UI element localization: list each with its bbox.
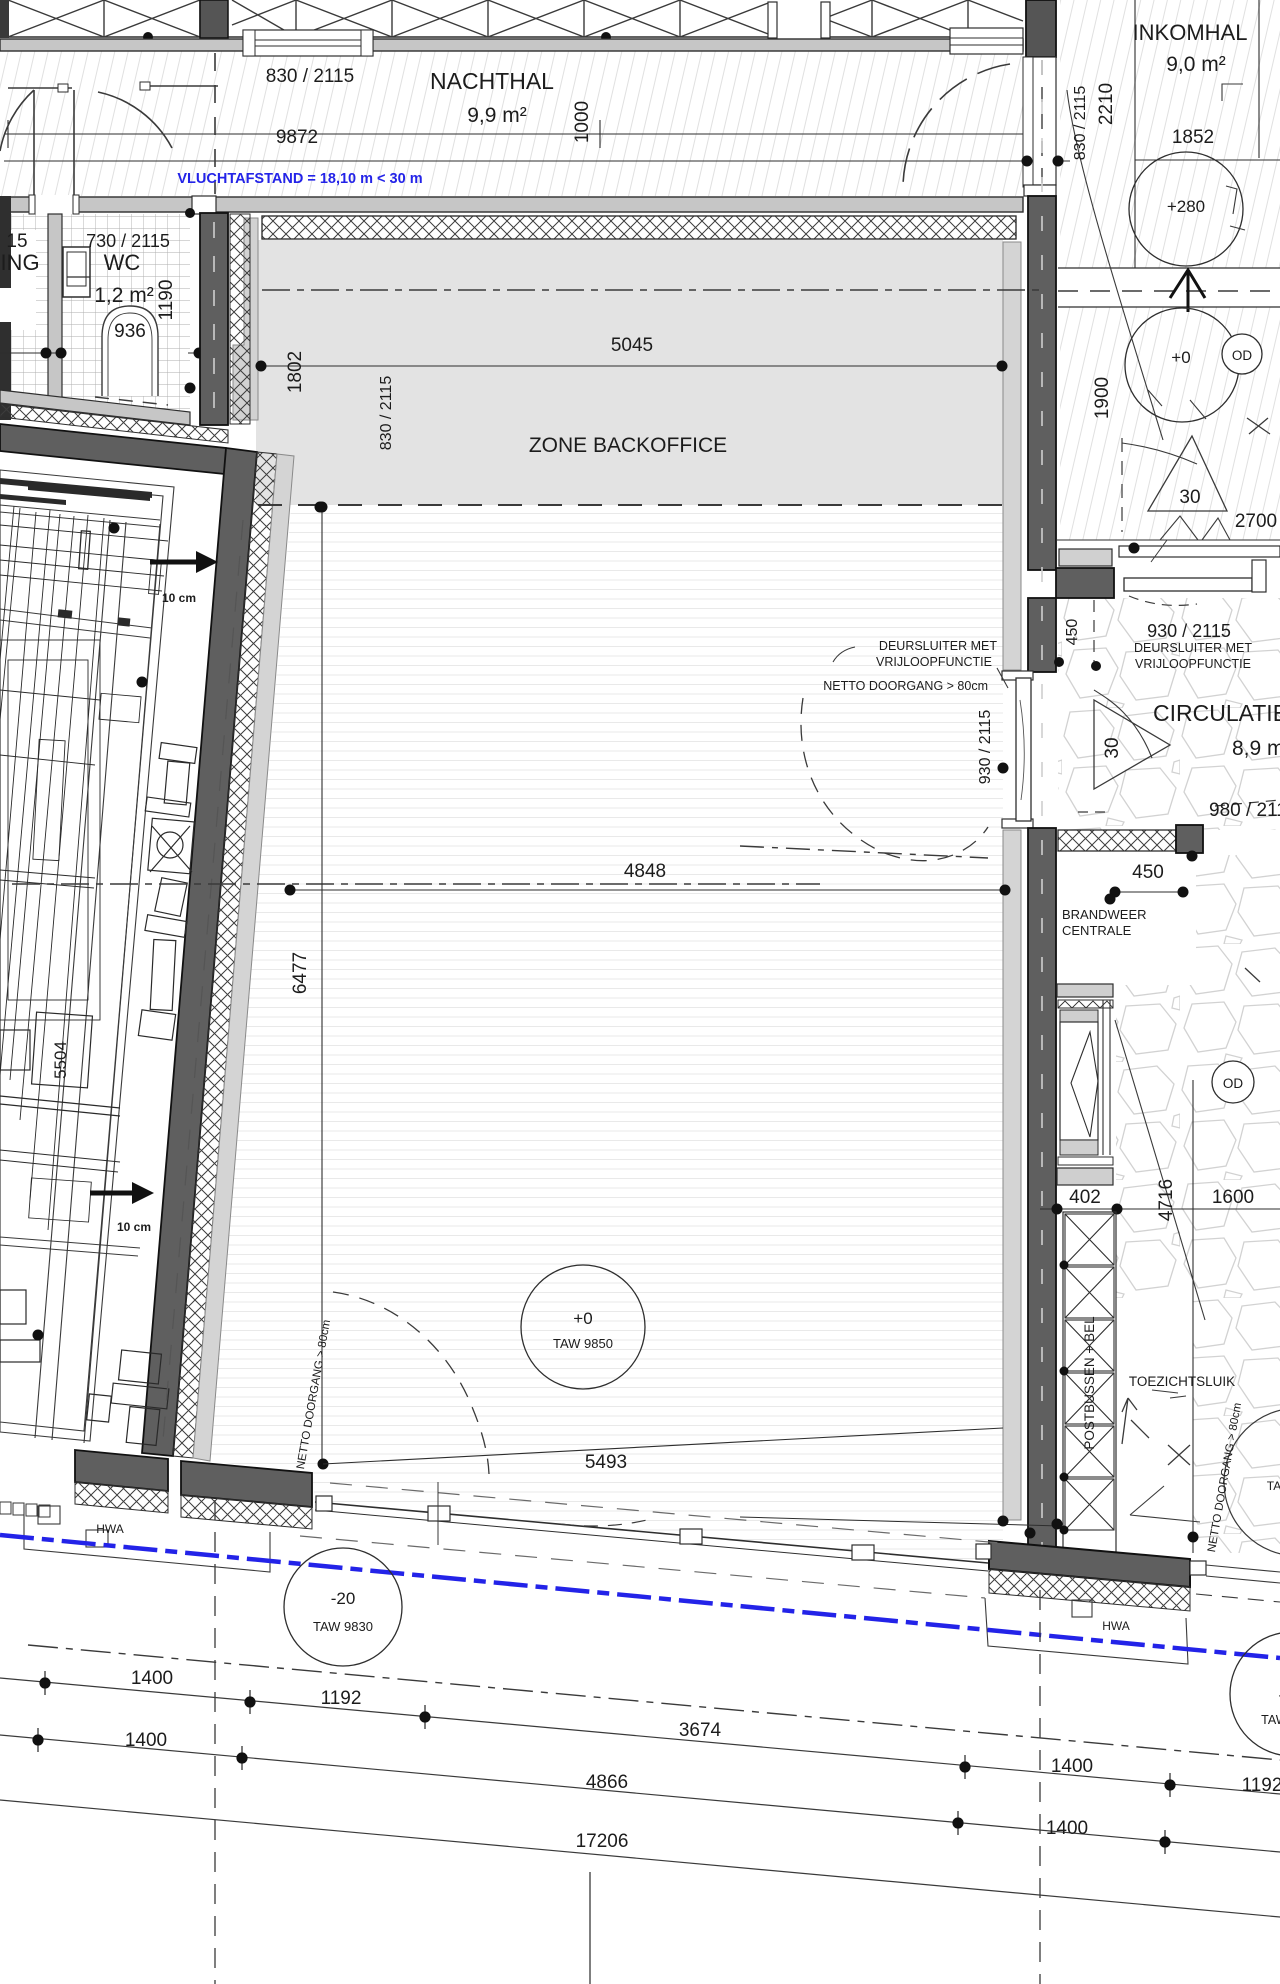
svg-text:ING: ING <box>0 250 39 275</box>
svg-text:930 / 2115: 930 / 2115 <box>1147 621 1231 641</box>
svg-text:HWA: HWA <box>96 1522 124 1536</box>
svg-text:4716: 4716 <box>1156 1179 1177 1221</box>
svg-text:CENTRALE: CENTRALE <box>1062 923 1132 938</box>
svg-text:1192: 1192 <box>1242 1775 1280 1796</box>
svg-text:OD: OD <box>1223 1076 1244 1091</box>
svg-text:450: 450 <box>1132 862 1164 883</box>
svg-text:DEURSLUITER MET: DEURSLUITER MET <box>1134 641 1252 655</box>
svg-text:30: 30 <box>1102 737 1123 758</box>
svg-text:NACHTHAL: NACHTHAL <box>430 68 554 94</box>
svg-text:1802: 1802 <box>285 351 306 393</box>
svg-text:10 cm: 10 cm <box>162 591 196 605</box>
svg-text:DEURSLUITER MET: DEURSLUITER MET <box>879 639 997 653</box>
svg-text:2210: 2210 <box>1096 83 1117 125</box>
svg-text:-20: -20 <box>331 1589 356 1608</box>
svg-text:1000: 1000 <box>572 101 593 143</box>
svg-text:1600: 1600 <box>1212 1187 1254 1208</box>
svg-text:980 / 2115: 980 / 2115 <box>1209 800 1280 821</box>
svg-text:5493: 5493 <box>585 1452 627 1473</box>
svg-text:936: 936 <box>114 321 146 342</box>
svg-text:TAW 9850: TAW 9850 <box>553 1336 613 1351</box>
svg-text:INKOMHAL: INKOMHAL <box>1133 20 1248 45</box>
svg-text:30: 30 <box>1179 487 1200 508</box>
svg-text:3674: 3674 <box>679 1720 722 1741</box>
svg-text:VRIJLOOPFUNCTIE: VRIJLOOPFUNCTIE <box>1135 657 1251 671</box>
svg-text:CIRCULATIE: CIRCULATIE <box>1153 700 1280 726</box>
svg-text:VLUCHTAFSTAND = 18,10 m < 30 m: VLUCHTAFSTAND = 18,10 m < 30 m <box>177 171 422 187</box>
svg-text:17206: 17206 <box>576 1831 629 1852</box>
svg-text:4866: 4866 <box>586 1772 628 1793</box>
svg-text:5504: 5504 <box>51 1041 70 1079</box>
svg-text:OD: OD <box>1232 348 1253 363</box>
svg-text:15: 15 <box>6 231 27 252</box>
svg-text:1852: 1852 <box>1172 127 1214 148</box>
svg-text:BRANDWEER: BRANDWEER <box>1062 907 1147 922</box>
svg-text:9,9 m²: 9,9 m² <box>467 104 527 127</box>
svg-text:2700: 2700 <box>1235 511 1277 532</box>
svg-text:4848: 4848 <box>624 861 666 882</box>
svg-text:1900: 1900 <box>1092 377 1113 419</box>
svg-text:TAW 9830: TAW 9830 <box>313 1619 373 1634</box>
svg-text:+280: +280 <box>1167 197 1205 216</box>
svg-text:TOEZICHTSLUIK: TOEZICHTSLUIK <box>1129 1374 1235 1389</box>
svg-text:NETTO DOORGANG > 80cm: NETTO DOORGANG > 80cm <box>823 679 988 693</box>
svg-text:HWA: HWA <box>1102 1619 1130 1633</box>
svg-text:VRIJLOOPFUNCTIE: VRIJLOOPFUNCTIE <box>876 655 992 669</box>
svg-text:9,0 m²: 9,0 m² <box>1166 53 1226 76</box>
svg-text:6477: 6477 <box>290 952 311 994</box>
svg-text:POSTBUSSEN + BEL: POSTBUSSEN + BEL <box>1082 1316 1097 1450</box>
svg-text:1192: 1192 <box>321 1688 362 1709</box>
svg-text:TAW 9830: TAW 9830 <box>1261 1713 1280 1727</box>
svg-text:10 cm: 10 cm <box>117 1220 151 1234</box>
svg-text:8,9 m²: 8,9 m² <box>1232 737 1280 760</box>
svg-text:1,2 m²: 1,2 m² <box>94 284 154 307</box>
svg-text:5045: 5045 <box>611 335 653 356</box>
svg-text:9872: 9872 <box>276 127 318 148</box>
svg-text:TA: TA <box>1267 1479 1280 1493</box>
svg-text:1400: 1400 <box>1046 1818 1088 1839</box>
svg-text:ZONE BACKOFFICE: ZONE BACKOFFICE <box>529 434 727 457</box>
svg-text:WC: WC <box>104 250 141 275</box>
svg-text:930 / 2115: 930 / 2115 <box>977 710 994 785</box>
svg-text:830 / 2115: 830 / 2115 <box>378 376 395 451</box>
svg-text:1400: 1400 <box>131 1668 173 1689</box>
svg-text:402: 402 <box>1069 1187 1101 1208</box>
svg-text:1190: 1190 <box>156 280 177 321</box>
svg-text:+0: +0 <box>573 1309 592 1328</box>
svg-text:830 / 2115: 830 / 2115 <box>1072 86 1089 161</box>
svg-text:+0: +0 <box>1171 348 1190 367</box>
svg-text:830 / 2115: 830 / 2115 <box>266 66 354 87</box>
svg-text:730 / 2115: 730 / 2115 <box>86 231 170 251</box>
svg-text:1400: 1400 <box>125 1730 167 1751</box>
svg-text:1400: 1400 <box>1051 1756 1093 1777</box>
svg-text:450: 450 <box>1064 619 1081 646</box>
